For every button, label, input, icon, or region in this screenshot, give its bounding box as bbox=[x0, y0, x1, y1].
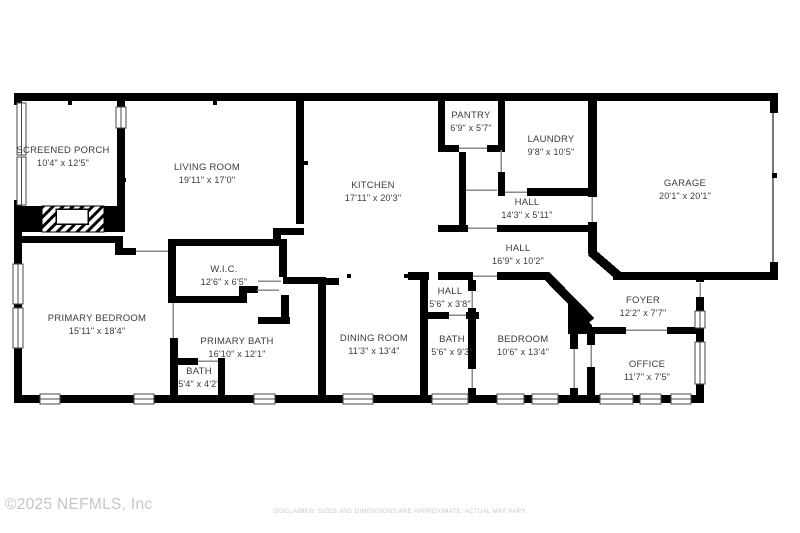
room-name: FOYER bbox=[620, 295, 667, 307]
room-name: DINING ROOM bbox=[340, 333, 408, 345]
room-dims: 16'10" x 12'1" bbox=[200, 349, 273, 360]
room-name: GARAGE bbox=[659, 178, 711, 190]
room-name: HALL bbox=[492, 243, 544, 255]
room-label-primary-bedroom: PRIMARY BEDROOM15'11" x 18'4" bbox=[48, 313, 146, 337]
angled-walls bbox=[546, 252, 620, 321]
room-dims: 5'6" x 3'8" bbox=[429, 299, 471, 310]
room-name: BATH bbox=[431, 334, 473, 346]
room-dims: 5'6" x 9'3" bbox=[431, 347, 473, 358]
copyright-text: ©2025 NEFMLS, Inc bbox=[5, 496, 152, 514]
room-dims: 11'3" x 13'4" bbox=[340, 346, 408, 357]
room-label-wic: W.I.C.12'6" x 6'5" bbox=[201, 264, 248, 288]
room-name: LIVING ROOM bbox=[174, 162, 240, 174]
room-name: LAUNDRY bbox=[528, 134, 575, 146]
room-dims: 14'3" x 5'11" bbox=[501, 210, 552, 221]
room-dims: 16'9" x 10'2" bbox=[492, 256, 544, 267]
room-name: BEDROOM bbox=[497, 334, 549, 346]
floor-plan-drawing bbox=[0, 0, 800, 533]
room-dims: 10'4" x 12'5" bbox=[16, 158, 109, 169]
room-dims: 12'6" x 6'5" bbox=[201, 277, 248, 288]
room-name: HALL bbox=[501, 197, 552, 209]
room-dims: 11'7" x 7'5" bbox=[624, 372, 670, 383]
room-dims: 5'4" x 4'2" bbox=[178, 379, 220, 390]
room-dims: 17'11" x 20'3" bbox=[345, 193, 402, 204]
fireplace-icon bbox=[42, 206, 104, 232]
room-label-bedroom: BEDROOM10'6" x 13'4" bbox=[497, 334, 549, 358]
room-label-primary-bath: PRIMARY BATH16'10" x 12'1" bbox=[200, 336, 273, 360]
room-label-hall-upper: HALL14'3" x 5'11" bbox=[501, 197, 552, 221]
disclaimer-text: DISCLAIMER: SIZES AND DIMENSIONS ARE APP… bbox=[273, 508, 527, 515]
room-name: BATH bbox=[178, 366, 220, 378]
room-label-dining-room: DINING ROOM11'3" x 13'4" bbox=[340, 333, 408, 357]
room-label-hall-lower: HALL16'9" x 10'2" bbox=[492, 243, 544, 267]
floor-plan: SCREENED PORCH10'4" x 12'5" LIVING ROOM1… bbox=[0, 0, 800, 533]
room-label-office: OFFICE11'7" x 7'5" bbox=[624, 359, 670, 383]
room-dims: 12'2" x 7'7" bbox=[620, 308, 667, 319]
room-label-bath-small: BATH5'4" x 4'2" bbox=[178, 366, 220, 390]
room-dims: 9'8" x 10'5" bbox=[528, 147, 575, 158]
room-label-hall-small: HALL5'6" x 3'8" bbox=[429, 286, 471, 310]
room-label-pantry: PANTRY6'9" x 5'7" bbox=[450, 110, 492, 134]
room-name: W.I.C. bbox=[201, 264, 248, 276]
room-name: PANTRY bbox=[450, 110, 492, 122]
room-name: HALL bbox=[429, 286, 471, 298]
room-name: SCREENED PORCH bbox=[16, 145, 109, 157]
room-dims: 15'11" x 18'4" bbox=[48, 326, 146, 337]
room-dims: 10'6" x 13'4" bbox=[497, 347, 549, 358]
room-name: KITCHEN bbox=[345, 180, 402, 192]
room-dims: 6'9" x 5'7" bbox=[450, 123, 492, 134]
room-name: PRIMARY BATH bbox=[200, 336, 273, 348]
room-label-laundry: LAUNDRY9'8" x 10'5" bbox=[528, 134, 575, 158]
room-label-bath: BATH5'6" x 9'3" bbox=[431, 334, 473, 358]
room-label-foyer: FOYER12'2" x 7'7" bbox=[620, 295, 667, 319]
room-dims: 19'11" x 17'0" bbox=[174, 175, 240, 186]
room-name: PRIMARY BEDROOM bbox=[48, 313, 146, 325]
room-dims: 20'1" x 20'1" bbox=[659, 191, 711, 202]
room-label-garage: GARAGE20'1" x 20'1" bbox=[659, 178, 711, 202]
room-name: OFFICE bbox=[624, 359, 670, 371]
room-label-screened-porch: SCREENED PORCH10'4" x 12'5" bbox=[16, 145, 109, 169]
room-label-kitchen: KITCHEN17'11" x 20'3" bbox=[345, 180, 402, 204]
room-label-living-room: LIVING ROOM19'11" x 17'0" bbox=[174, 162, 240, 186]
